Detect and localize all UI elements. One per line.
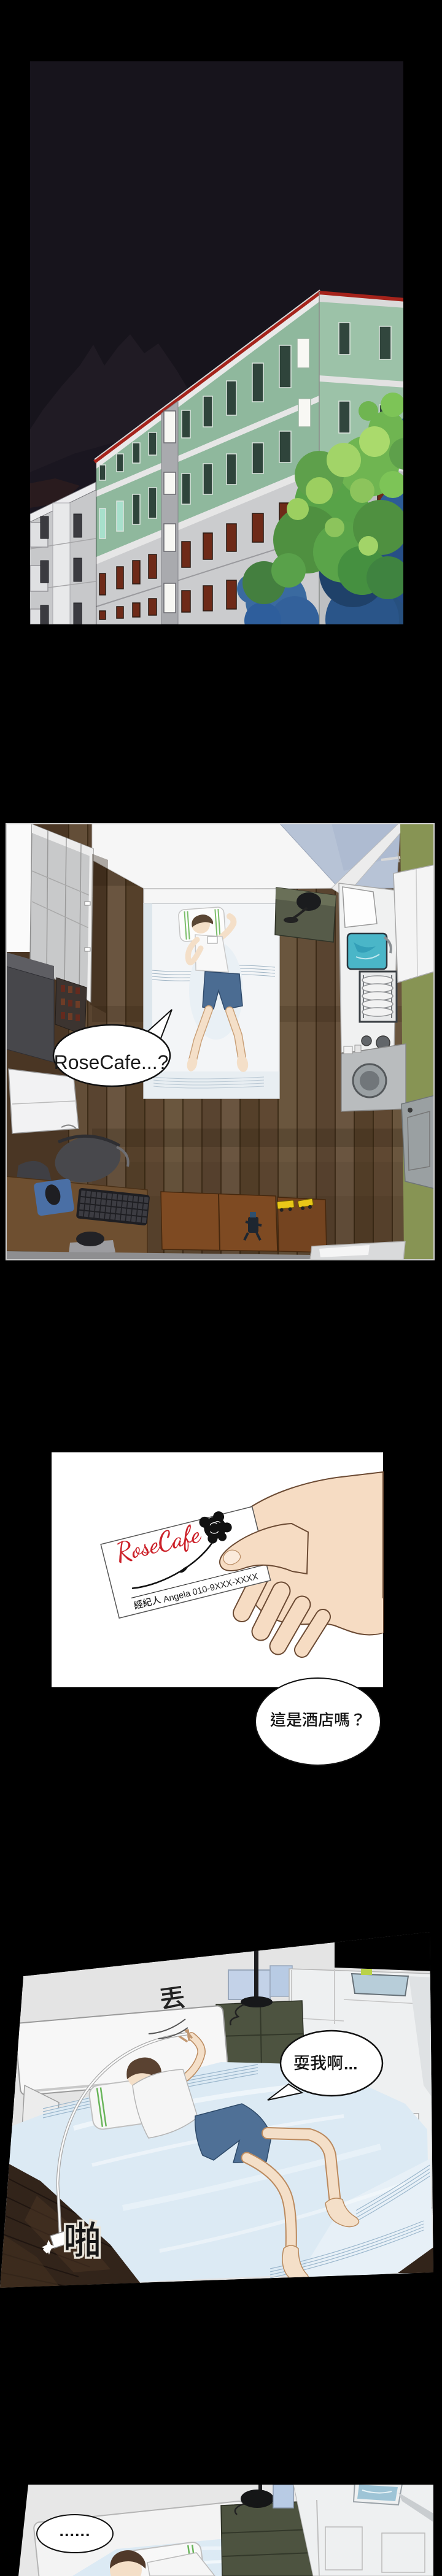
svg-text:......: ...... [59,2521,90,2540]
svg-text:...: ... [344,2055,358,2073]
svg-text:RoseCafe...?: RoseCafe...? [54,1051,169,1073]
